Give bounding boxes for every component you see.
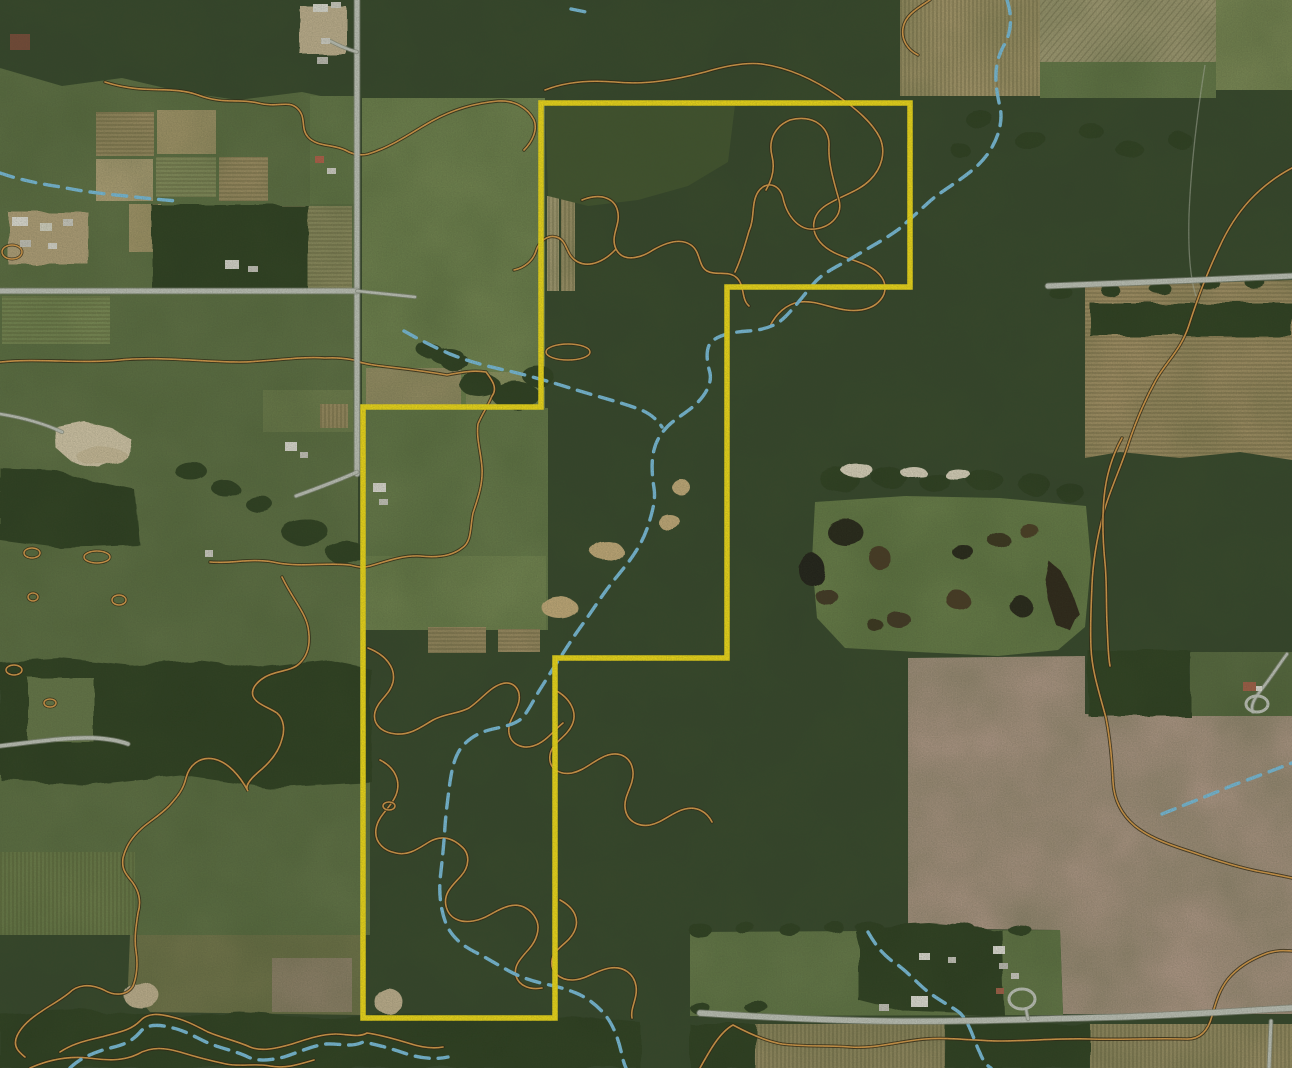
grain-texture-overlay (0, 0, 1292, 1068)
aerial-map-view (0, 0, 1292, 1068)
satellite-map-canvas (0, 0, 1292, 1068)
